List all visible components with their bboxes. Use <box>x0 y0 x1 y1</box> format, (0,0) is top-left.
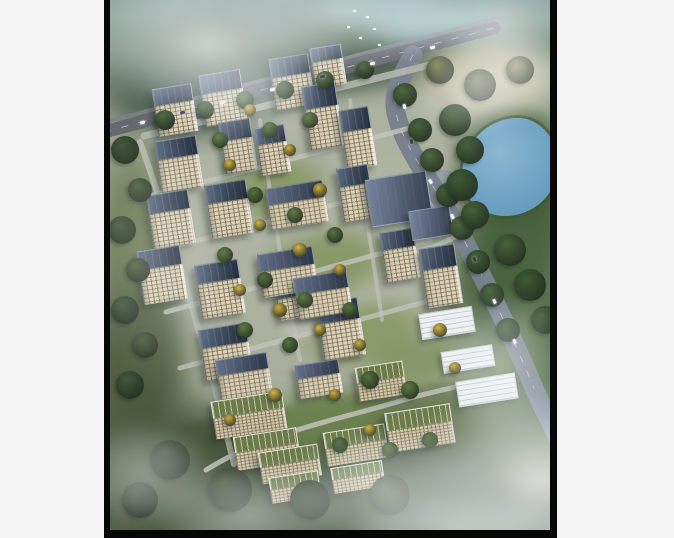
car <box>402 104 406 110</box>
car <box>140 120 146 124</box>
mist-cloud <box>280 430 500 530</box>
bird <box>347 26 350 28</box>
bird <box>359 37 362 39</box>
car <box>450 214 455 220</box>
car <box>430 45 436 49</box>
car <box>492 299 497 305</box>
page-background <box>0 0 674 538</box>
mist-cloud <box>170 60 330 150</box>
car <box>320 74 326 78</box>
rendering-frame <box>104 0 557 538</box>
aerial-rendering-image <box>110 0 550 530</box>
car <box>270 87 276 91</box>
car <box>428 179 433 185</box>
mist-cloud <box>400 380 550 530</box>
bird <box>373 28 376 30</box>
car <box>472 257 477 263</box>
mist-cloud <box>220 0 460 70</box>
bird <box>366 16 369 18</box>
clouds-and-traffic-layer <box>110 0 550 530</box>
mist-cloud <box>110 0 350 120</box>
mist-cloud <box>410 60 530 140</box>
mist-cloud <box>430 22 550 122</box>
bird <box>353 10 356 12</box>
mist-cloud <box>440 0 550 60</box>
bird <box>378 44 381 46</box>
car <box>370 61 376 65</box>
mist-cloud <box>150 460 350 530</box>
car <box>180 110 186 114</box>
mist-cloud <box>110 420 220 530</box>
mist-cloud <box>340 490 550 530</box>
mist-cloud <box>360 0 530 60</box>
car <box>410 139 414 144</box>
car <box>220 100 226 104</box>
car <box>512 339 517 345</box>
mist-cloud <box>440 290 550 440</box>
mist-cloud <box>110 130 230 390</box>
